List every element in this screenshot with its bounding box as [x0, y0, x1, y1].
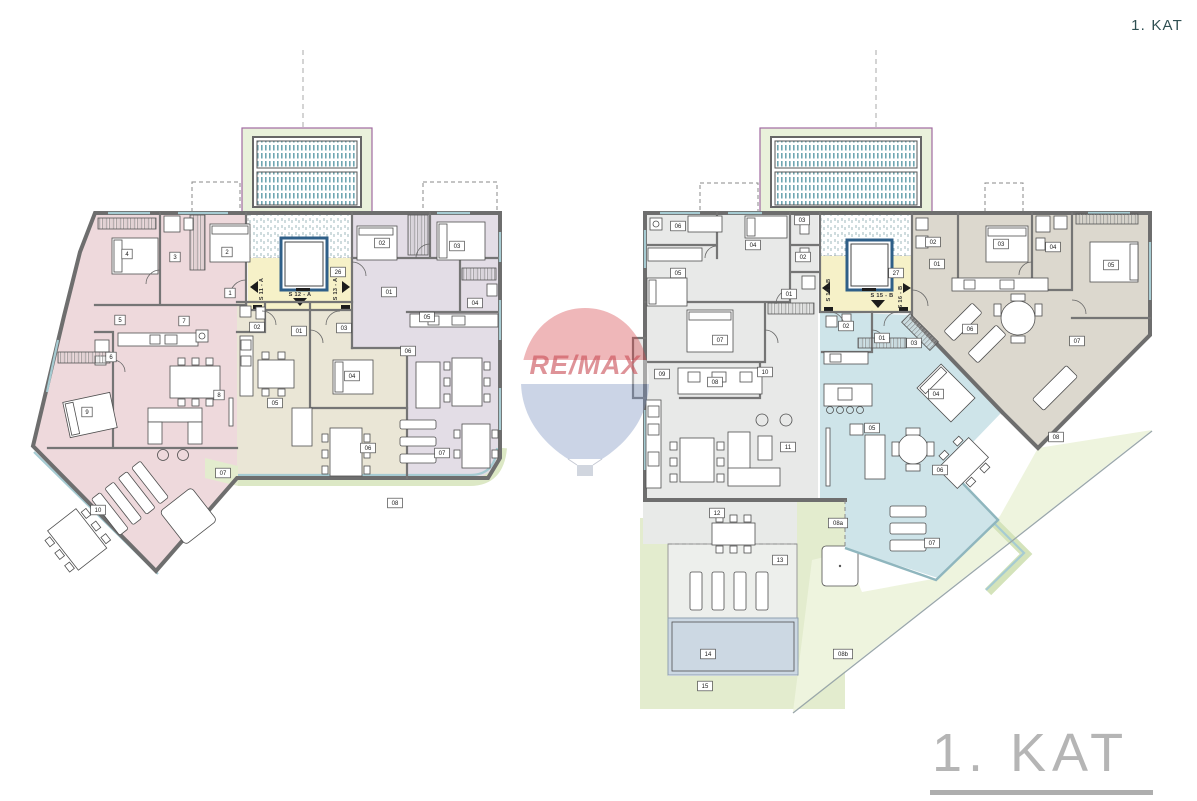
room-label: 08 — [708, 377, 723, 387]
room-label: 03 — [450, 241, 465, 251]
svg-text:02: 02 — [379, 241, 386, 247]
svg-text:10: 10 — [95, 508, 102, 514]
svg-text:03: 03 — [911, 341, 918, 347]
room-label: 08a — [828, 518, 847, 528]
svg-text:01: 01 — [879, 336, 886, 342]
svg-text:06: 06 — [365, 446, 372, 452]
remax-wordmark: RE/MAX — [529, 350, 641, 380]
room-label: 07 — [1070, 336, 1085, 346]
svg-text:05: 05 — [675, 271, 682, 277]
svg-text:08: 08 — [392, 501, 399, 507]
svg-text:01: 01 — [296, 329, 303, 335]
page: 1234567891001020304050601020304050607070… — [0, 0, 1197, 801]
room-label: 06 — [401, 346, 416, 356]
svg-text:11: 11 — [785, 445, 792, 451]
room-label: 12 — [710, 508, 725, 518]
stair-label: S 14 - B — [826, 279, 832, 302]
svg-text:07: 07 — [1074, 339, 1081, 345]
floor-plan-drawing: 1234567891001020304050601020304050607070… — [0, 0, 1197, 801]
room-label: 05 — [420, 312, 435, 322]
floor-plan-b: 0102030405060708091011121314150102030405… — [633, 50, 1152, 713]
room-label: 01 — [292, 326, 307, 336]
room-label: 26 — [331, 267, 346, 277]
svg-text:10: 10 — [762, 370, 769, 376]
room-label: 03 — [795, 215, 810, 225]
room-label: 10 — [758, 367, 773, 377]
svg-text:03: 03 — [454, 244, 461, 250]
svg-text:15: 15 — [702, 684, 709, 690]
room-label: 02 — [839, 321, 854, 331]
room-label: 2 — [222, 247, 232, 257]
room-label: 04 — [468, 298, 483, 308]
svg-text:05: 05 — [869, 426, 876, 432]
stair-label: S 12 - A — [289, 292, 312, 298]
svg-text:03: 03 — [341, 326, 348, 332]
room-label: 7 — [179, 316, 189, 326]
room-label: 03 — [994, 239, 1009, 249]
svg-text:07: 07 — [220, 471, 227, 477]
stair-label: S 11 - A — [259, 278, 265, 300]
svg-text:07: 07 — [929, 541, 936, 547]
room-label: 02 — [926, 237, 941, 247]
svg-text:03: 03 — [998, 242, 1005, 248]
room-label: 04 — [1046, 242, 1061, 252]
room-label: 11 — [781, 442, 796, 452]
svg-text:06: 06 — [405, 349, 412, 355]
svg-text:05: 05 — [272, 401, 279, 407]
svg-text:01: 01 — [934, 262, 941, 268]
svg-text:05: 05 — [1108, 263, 1115, 269]
svg-text:04: 04 — [472, 301, 479, 307]
room-label: 9 — [82, 407, 92, 417]
room-label: 06 — [671, 221, 686, 231]
room-label: 05 — [865, 423, 880, 433]
room-label: 05 — [1104, 260, 1119, 270]
svg-text:02: 02 — [254, 325, 261, 331]
room-label: 04 — [746, 240, 761, 250]
svg-text:01: 01 — [786, 292, 793, 298]
svg-text:02: 02 — [800, 255, 807, 261]
floor-plan-a: 1234567891001020304050601020304050607070… — [33, 50, 503, 611]
svg-text:04: 04 — [933, 392, 940, 398]
room-label: 3 — [170, 252, 180, 262]
room-label: 08 — [1049, 432, 1064, 442]
svg-text:07: 07 — [717, 338, 724, 344]
remax-watermark: RE/MAX — [515, 300, 655, 476]
svg-text:12: 12 — [714, 511, 721, 517]
svg-text:06: 06 — [967, 327, 974, 333]
svg-text:04: 04 — [1050, 245, 1057, 251]
room-label: 5 — [115, 315, 125, 325]
room-label: 05 — [671, 268, 686, 278]
room-label: 03 — [907, 338, 922, 348]
svg-text:03: 03 — [799, 218, 806, 224]
room-label: 1 — [225, 288, 235, 298]
floor-label-bottom-text: 1. KAT — [932, 723, 1129, 783]
room-label: 08b — [833, 649, 852, 659]
room-label: 01 — [382, 287, 397, 297]
room-label: 07 — [216, 468, 231, 478]
room-label: 01 — [930, 259, 945, 269]
svg-text:08: 08 — [1053, 435, 1060, 441]
room-label: 10 — [91, 505, 106, 515]
room-label: 8 — [214, 390, 224, 400]
pool — [668, 618, 798, 675]
svg-text:06: 06 — [937, 468, 944, 474]
room-label: 07 — [713, 335, 728, 345]
room-label: 6 — [106, 352, 116, 362]
svg-text:06: 06 — [675, 224, 682, 230]
svg-text:02: 02 — [843, 324, 850, 330]
stair-label: S 13 - A — [333, 278, 339, 301]
room-label: 09 — [655, 369, 670, 379]
svg-text:07: 07 — [439, 451, 446, 457]
svg-text:08a: 08a — [833, 521, 844, 527]
svg-text:04: 04 — [349, 374, 356, 380]
floor-label-bottom: 1. KAT — [930, 722, 1153, 795]
stair-label: S 15 - B — [871, 293, 894, 299]
svg-text:14: 14 — [705, 652, 712, 658]
room-label: 4 — [122, 249, 132, 259]
room-label: 02 — [250, 322, 265, 332]
room-label: 04 — [345, 371, 360, 381]
room-label: 08 — [388, 498, 403, 508]
room-label: 03 — [337, 323, 352, 333]
svg-text:09: 09 — [659, 372, 666, 378]
room-label: 02 — [796, 252, 811, 262]
room-label: 14 — [701, 649, 716, 659]
room-label: 13 — [773, 555, 788, 565]
floor-label-top: 1. KAT — [1131, 17, 1183, 34]
room-label: 07 — [925, 538, 940, 548]
room-label: 04 — [929, 389, 944, 399]
svg-text:13: 13 — [777, 558, 784, 564]
room-label: 06 — [361, 443, 376, 453]
room-label: 07 — [435, 448, 450, 458]
svg-text:05: 05 — [424, 315, 431, 321]
svg-text:27: 27 — [893, 271, 900, 277]
svg-text:01: 01 — [386, 290, 393, 296]
room-label: 06 — [963, 324, 978, 334]
room-label: 27 — [889, 268, 904, 278]
svg-text:04: 04 — [750, 243, 757, 249]
svg-text:08b: 08b — [838, 652, 849, 658]
room-label: 01 — [875, 333, 890, 343]
room-label: 05 — [268, 398, 283, 408]
room-label: 15 — [698, 681, 713, 691]
room-label: 06 — [933, 465, 948, 475]
svg-text:26: 26 — [335, 270, 342, 276]
room-label: 02 — [375, 238, 390, 248]
svg-text:02: 02 — [930, 240, 937, 246]
svg-text:08: 08 — [712, 380, 719, 386]
stair-label: S 16 - B — [898, 286, 904, 309]
room-label: 01 — [782, 289, 797, 299]
